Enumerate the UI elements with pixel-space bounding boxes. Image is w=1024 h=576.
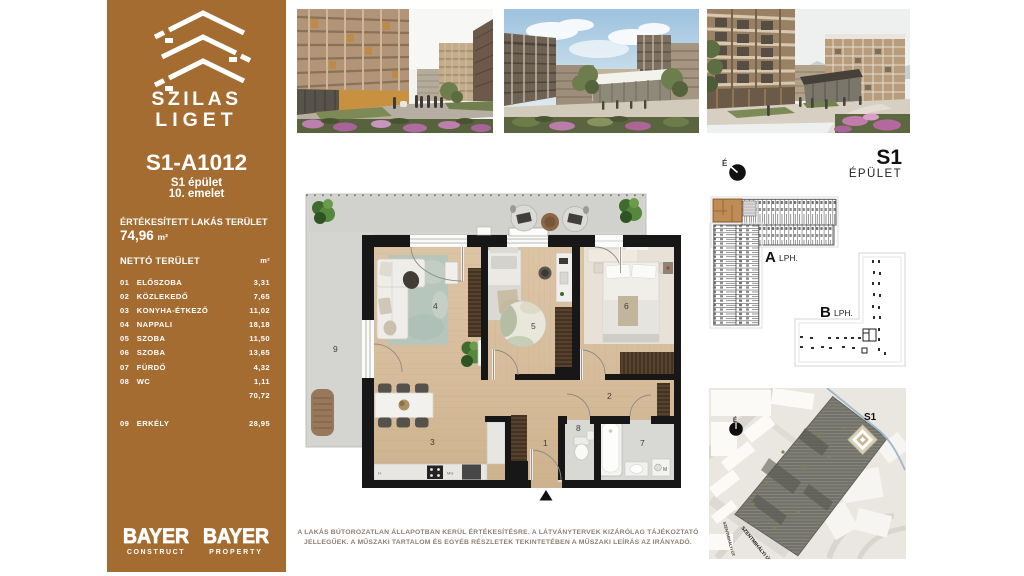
svg-text:9: 9 [333, 344, 338, 354]
svg-text:3: 3 [430, 437, 435, 447]
svg-text:A: A [765, 249, 776, 266]
svg-text:4: 4 [433, 301, 438, 311]
svg-text:MG: MG [447, 471, 453, 476]
svg-text:M: M [663, 467, 667, 473]
svg-text:B: B [820, 304, 831, 321]
svg-text:LPH.: LPH. [834, 308, 853, 318]
svg-text:S1: S1 [864, 412, 877, 423]
svg-text:7: 7 [640, 438, 645, 448]
svg-text:5: 5 [531, 321, 536, 331]
svg-text:H: H [378, 471, 381, 476]
svg-text:2: 2 [607, 391, 612, 401]
svg-text:1: 1 [543, 438, 548, 448]
svg-text:8: 8 [576, 423, 581, 433]
svg-text:É: É [722, 159, 728, 168]
svg-text:6: 6 [624, 301, 629, 311]
